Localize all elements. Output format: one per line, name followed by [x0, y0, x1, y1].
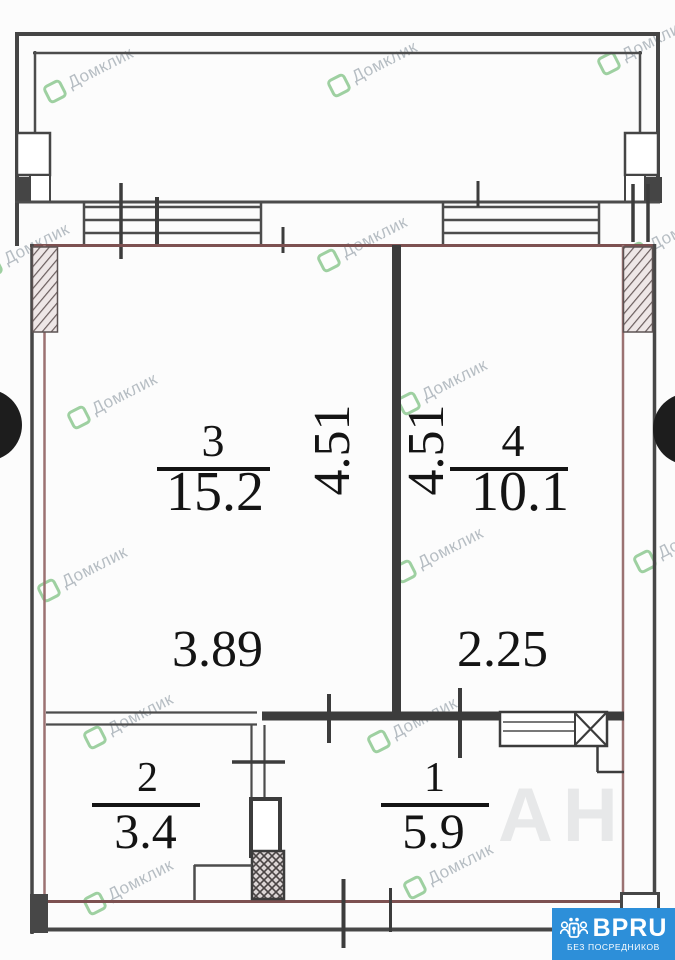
bpru-brand-text: BPRU [593, 916, 668, 941]
dimension-room3-width: 3.89 [155, 624, 280, 676]
bpru-people-lock-icon [560, 917, 588, 941]
dimension-room3-height: 4.51 [307, 390, 363, 510]
bpru-logo-badge: BPRU БЕЗ ПОСРЕДНИКОВ [552, 908, 675, 960]
room-3-area: 15.2 [150, 464, 280, 520]
room-4-area: 10.1 [455, 464, 585, 520]
floor-plan-image: Домклик Домклик Домклик Домклик Домклик … [0, 0, 675, 960]
room-1-area: 5.9 [386, 806, 481, 856]
room-2-number: 2 [115, 757, 180, 799]
room-4-number: 4 [478, 418, 548, 464]
bpru-tagline-text: БЕЗ ПОСРЕДНИКОВ [567, 943, 660, 952]
dimension-room4-height: 4.51 [401, 390, 457, 510]
dimension-room4-width: 2.25 [440, 624, 565, 676]
room-2-area: 3.4 [98, 806, 193, 856]
room-3-number: 3 [178, 418, 248, 464]
room-1-number: 1 [402, 757, 467, 799]
